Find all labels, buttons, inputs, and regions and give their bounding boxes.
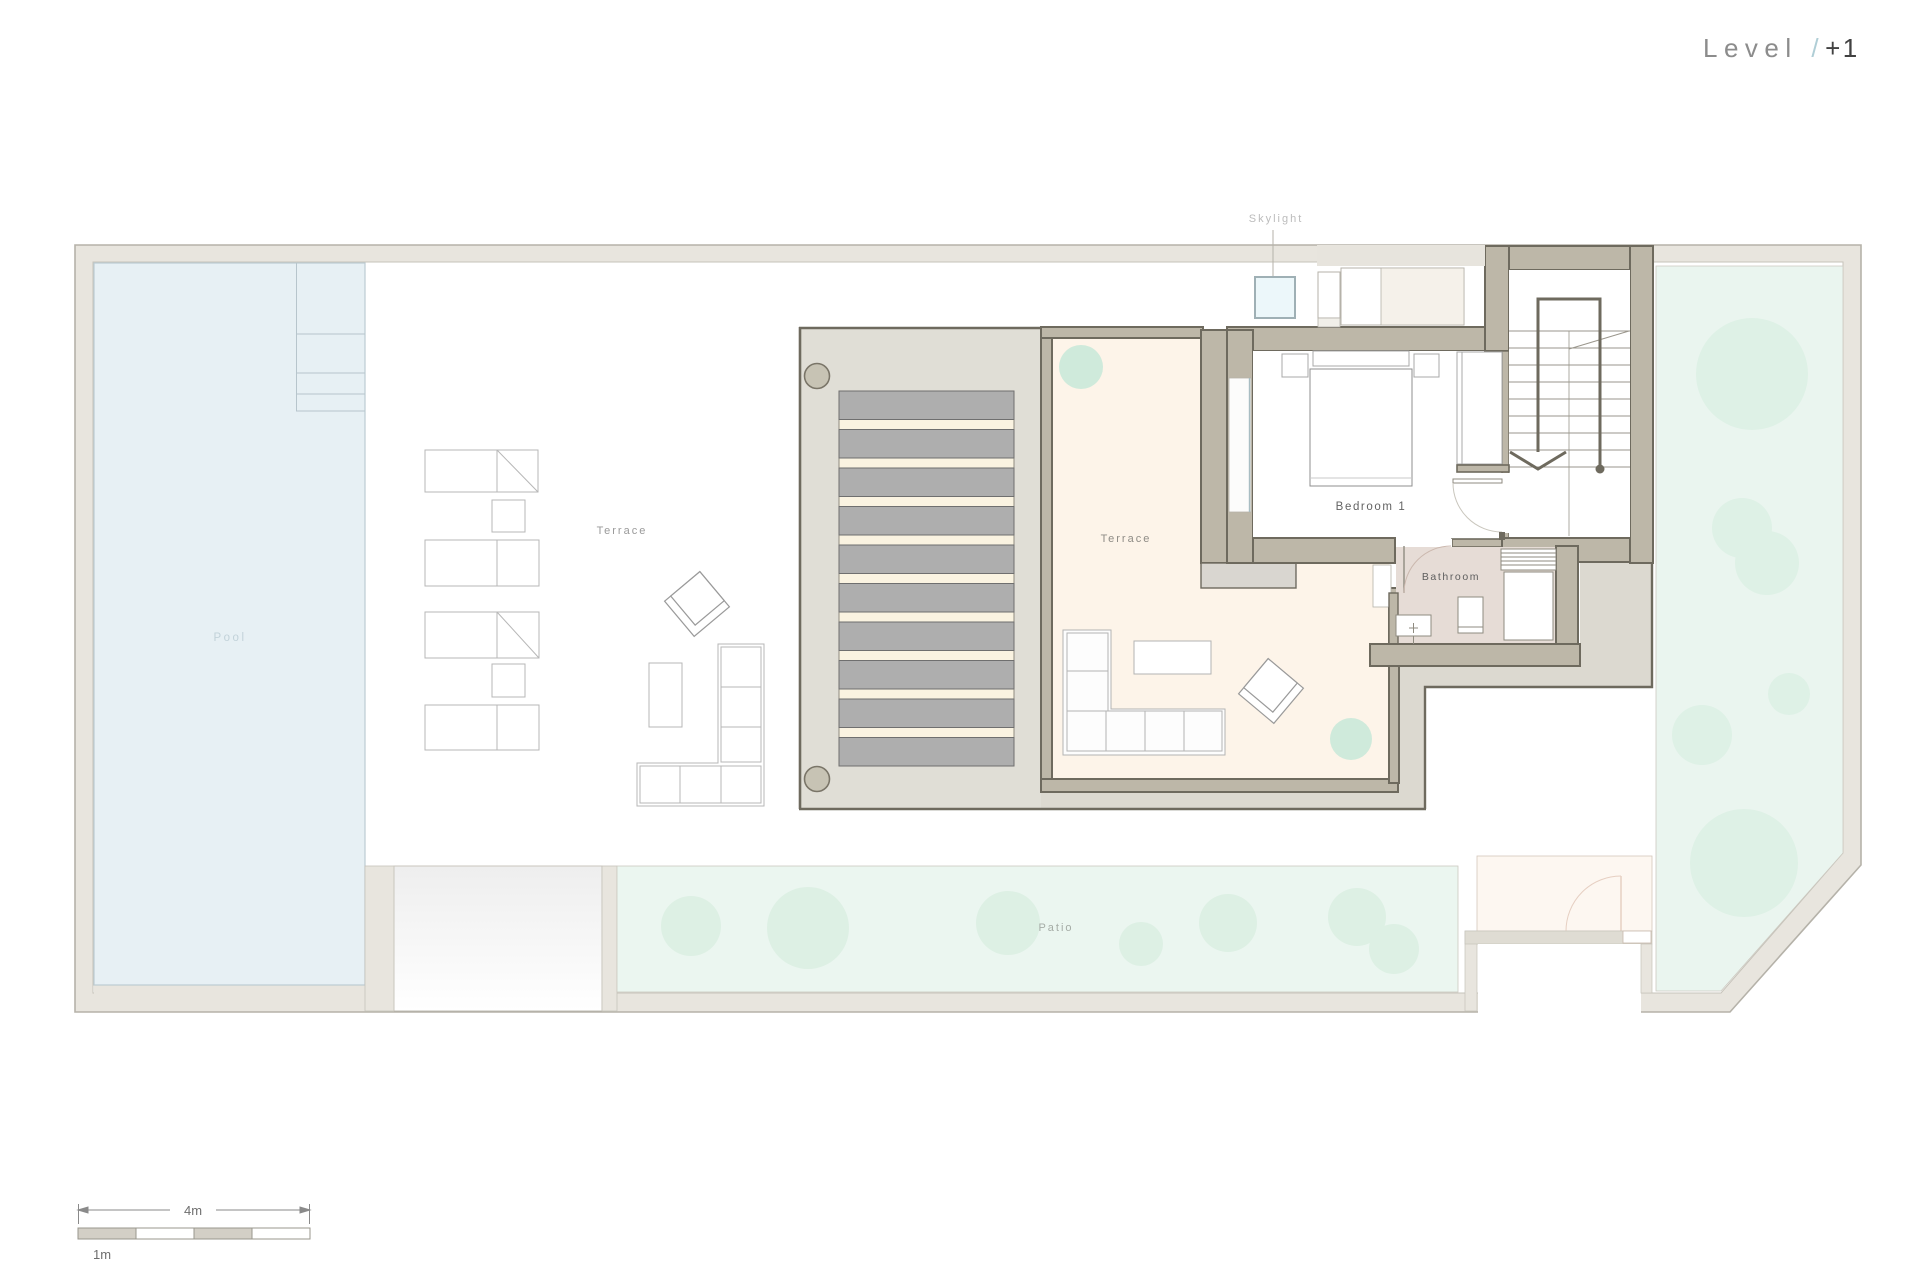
svg-text:Bathroom: Bathroom [1422,571,1480,583]
svg-text:4m: 4m [184,1203,202,1218]
svg-text:Bedroom 1: Bedroom 1 [1336,501,1407,513]
svg-text:Patio: Patio [1038,922,1073,934]
svg-text:1m: 1m [93,1247,111,1262]
svg-text:Skylight: Skylight [1249,213,1304,225]
svg-text:Terrace: Terrace [597,525,648,537]
svg-text:Pool: Pool [213,632,246,644]
svg-text:Level /+1: Level /+1 [1703,33,1860,63]
svg-text:Terrace: Terrace [1101,533,1152,545]
